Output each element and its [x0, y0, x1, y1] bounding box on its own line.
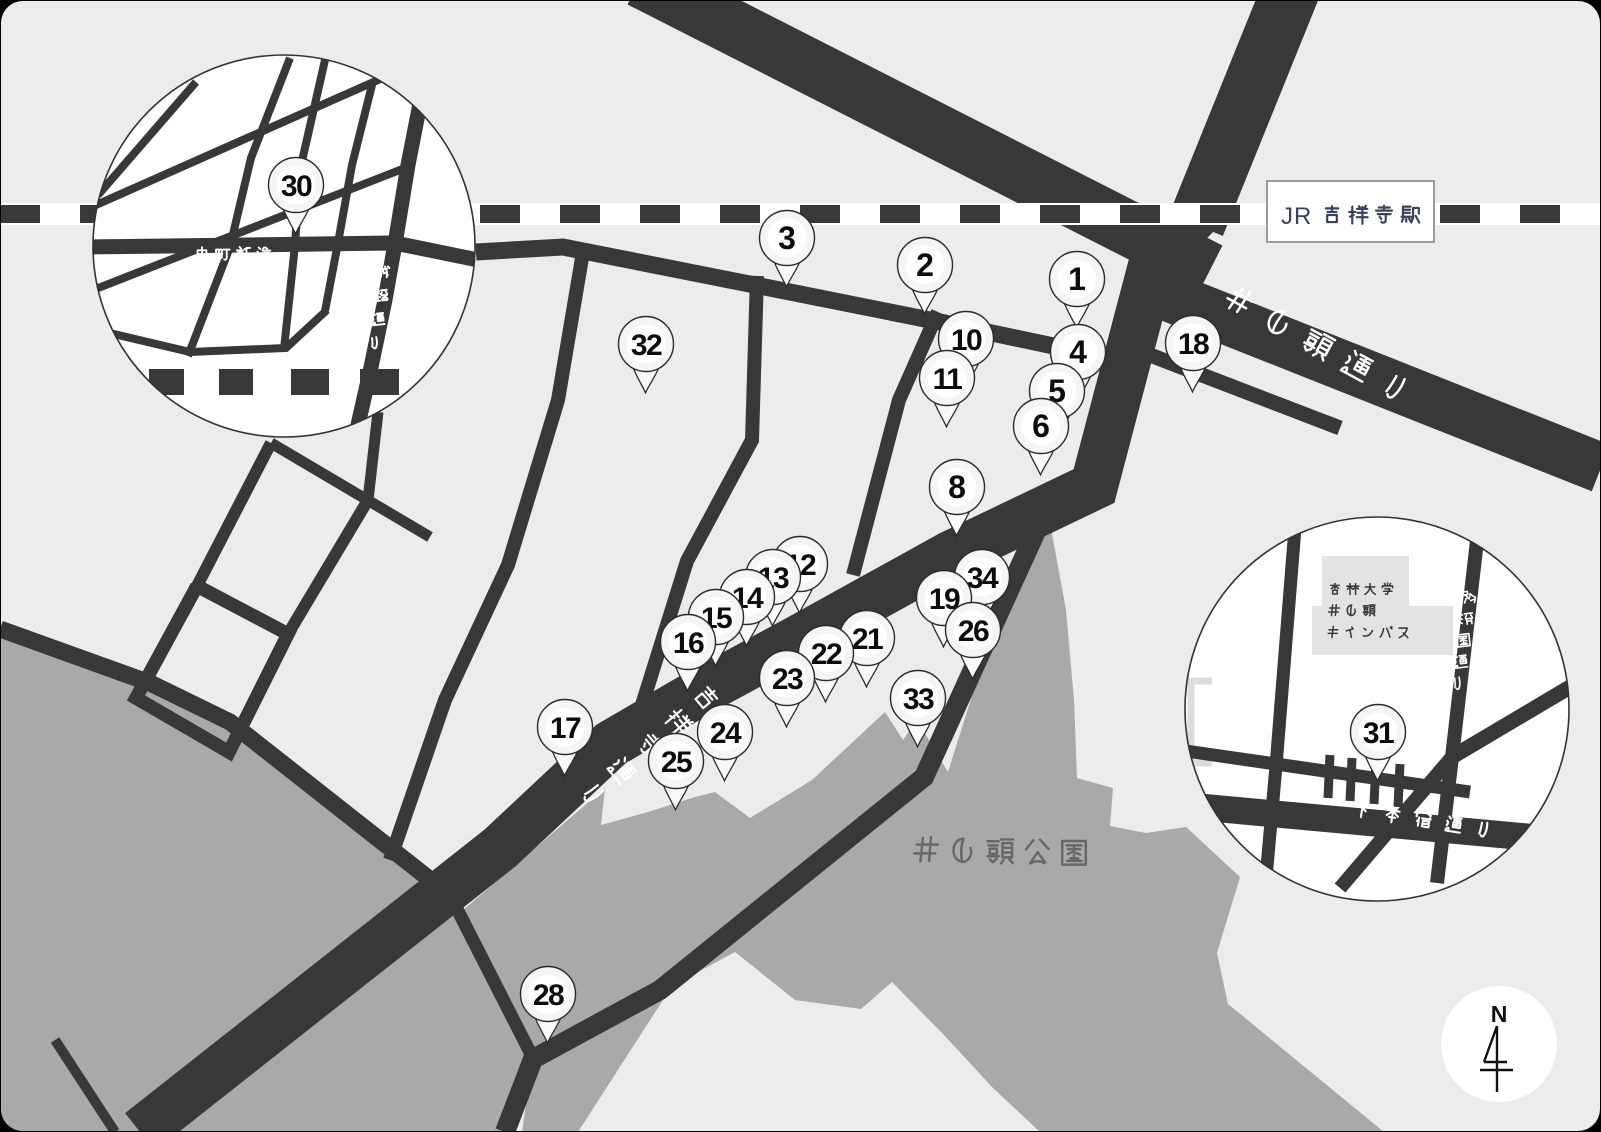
svg-text:31: 31	[1363, 717, 1394, 750]
svg-text:32: 32	[631, 329, 662, 362]
svg-text:23: 23	[772, 663, 803, 696]
svg-text:16: 16	[673, 627, 704, 660]
svg-text:30: 30	[281, 170, 312, 203]
svg-text:JR: JR	[1281, 203, 1312, 230]
svg-text:1: 1	[1068, 261, 1086, 297]
svg-text:4: 4	[1069, 334, 1087, 370]
svg-text:11: 11	[933, 363, 963, 396]
svg-text:18: 18	[1178, 328, 1209, 361]
svg-text:N: N	[1491, 1001, 1508, 1027]
svg-text:33: 33	[903, 683, 934, 716]
svg-text:25: 25	[661, 746, 692, 779]
svg-text:34: 34	[967, 562, 999, 595]
svg-text:26: 26	[958, 615, 989, 648]
svg-text:22: 22	[811, 638, 842, 671]
svg-text:17: 17	[550, 712, 581, 745]
svg-text:2: 2	[916, 247, 934, 283]
svg-text:28: 28	[533, 979, 564, 1012]
svg-text:21: 21	[852, 623, 883, 656]
svg-text:8: 8	[948, 469, 966, 505]
svg-text:6: 6	[1032, 408, 1050, 444]
svg-text:3: 3	[778, 220, 796, 256]
svg-text:24: 24	[710, 717, 742, 750]
